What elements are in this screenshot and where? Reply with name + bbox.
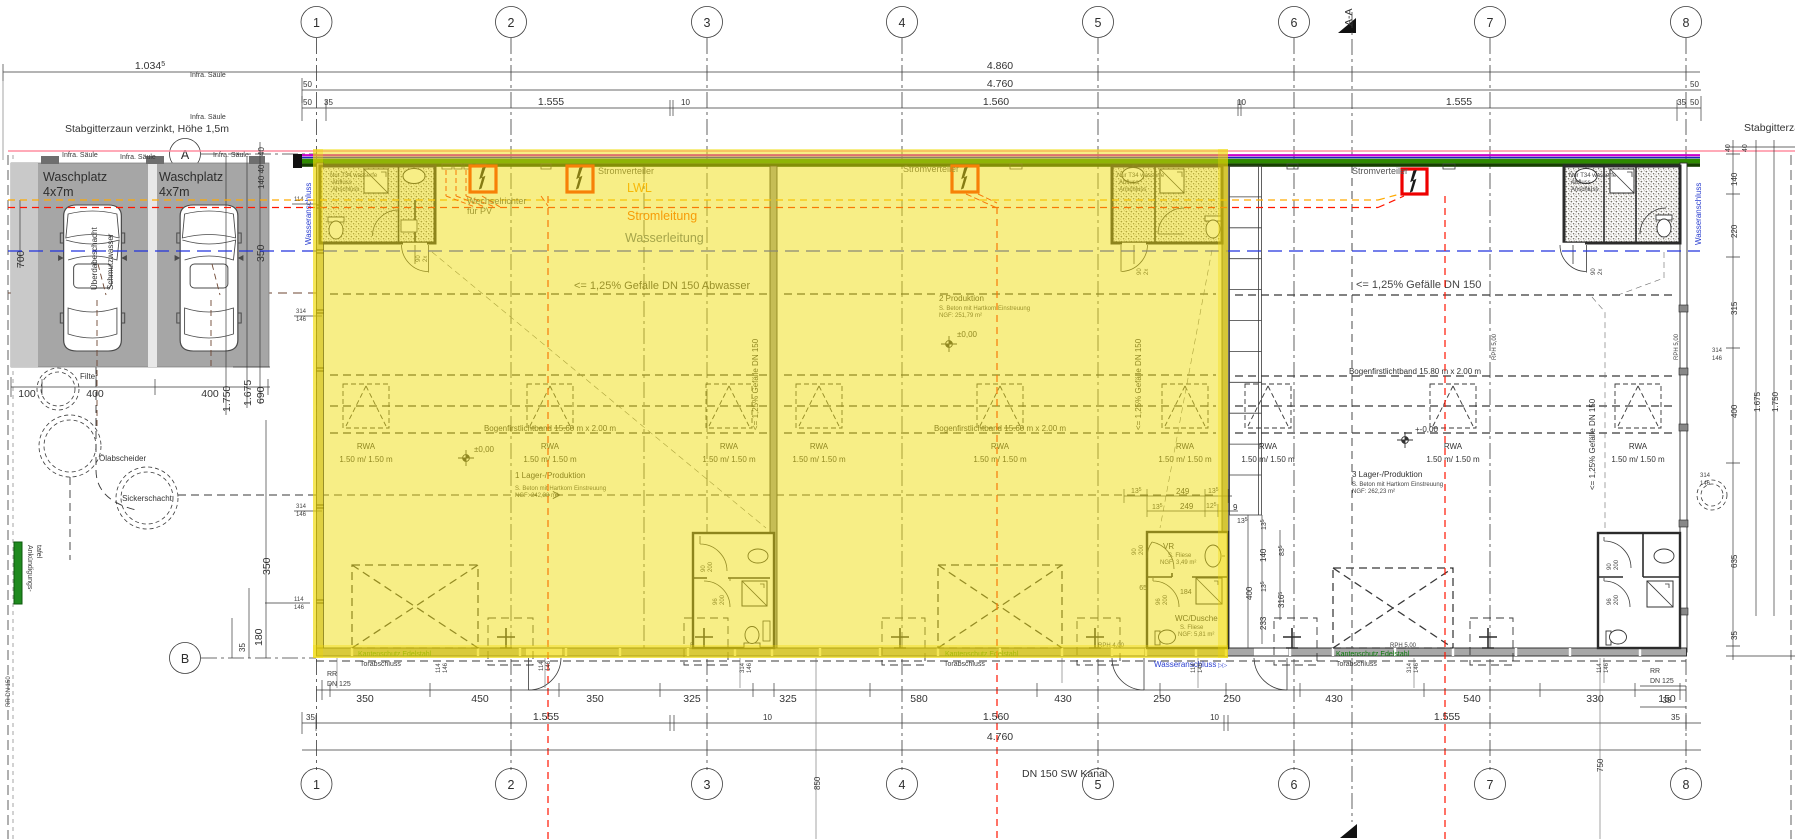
svg-text:RPH 5,00: RPH 5,00 (1674, 333, 1680, 360)
svg-text:146: 146 (546, 660, 552, 671)
svg-text:4: 4 (899, 16, 906, 30)
svg-text:7: 7 (1487, 778, 1494, 792)
svg-text:350: 350 (586, 693, 604, 705)
svg-text:114: 114 (539, 661, 545, 671)
svg-text:1.750: 1.750 (221, 386, 233, 412)
svg-text:96: 96 (1607, 598, 1613, 605)
svg-text:35: 35 (1730, 631, 1739, 640)
svg-text:Anschluss: Anschluss (1571, 187, 1598, 193)
svg-text:Infra. Säule: Infra. Säule (190, 72, 226, 79)
svg-text:1.675: 1.675 (1753, 391, 1762, 412)
svg-text:<= 1,25% Gefälle DN 150: <= 1,25% Gefälle DN 150 (1356, 279, 1481, 291)
svg-text:146: 146 (1198, 662, 1204, 673)
svg-text:90: 90 (1607, 563, 1613, 570)
svg-text:8: 8 (1683, 16, 1690, 30)
svg-text:4.760: 4.760 (987, 731, 1013, 743)
svg-text:10: 10 (681, 98, 690, 107)
svg-text:▷▷: ▷▷ (1218, 663, 1228, 669)
svg-text:Sickerschacht: Sickerschacht (122, 494, 173, 503)
svg-text:Wasseranschluss: Wasseranschluss (1694, 183, 1703, 245)
svg-text:35: 35 (1663, 696, 1672, 705)
svg-text:Wasseranschluss: Wasseranschluss (1154, 660, 1216, 669)
svg-text:140: 140 (1730, 172, 1739, 186)
svg-text:Nur T34 wasserfe: Nur T34 wasserfe (1569, 173, 1617, 179)
svg-text:1.0345: 1.0345 (135, 60, 165, 72)
svg-text:40: 40 (257, 147, 266, 156)
svg-text:314: 314 (740, 662, 746, 673)
svg-text:114: 114 (294, 597, 304, 603)
svg-text:Infra. Säule: Infra. Säule (213, 152, 249, 159)
svg-text:400: 400 (201, 388, 219, 400)
svg-text:4x7m: 4x7m (43, 185, 74, 199)
svg-text:180: 180 (253, 628, 265, 646)
svg-text:314: 314 (1700, 473, 1711, 479)
svg-text:114: 114 (1597, 663, 1603, 673)
svg-text:B: B (181, 652, 189, 666)
svg-text:Torabschluss: Torabschluss (360, 661, 401, 668)
svg-text:140 40: 140 40 (257, 164, 266, 189)
svg-text:580: 580 (910, 693, 928, 705)
svg-text:315: 315 (1730, 301, 1739, 315)
svg-text:1.50 m/ 1.50 m: 1.50 m/ 1.50 m (1426, 455, 1480, 464)
svg-text:40: 40 (1725, 144, 1732, 152)
svg-text:3: 3 (704, 16, 711, 30)
svg-text:1.555: 1.555 (1434, 711, 1460, 723)
svg-text:NGF: 262,23 m²: NGF: 262,23 m² (1352, 489, 1395, 495)
svg-text:450: 450 (471, 693, 489, 705)
svg-text:146: 146 (1700, 481, 1711, 487)
svg-text:850: 850 (813, 776, 822, 790)
svg-text:3 Lager-/Produktion: 3 Lager-/Produktion (1352, 470, 1422, 479)
svg-text:4.760: 4.760 (987, 78, 1013, 90)
svg-text:1.555: 1.555 (1446, 96, 1472, 108)
svg-text:3: 3 (704, 778, 711, 792)
svg-text:400: 400 (1245, 586, 1254, 600)
svg-text:220: 220 (1730, 224, 1739, 238)
svg-text:DN 125: DN 125 (1650, 678, 1674, 685)
svg-text:200: 200 (1614, 594, 1620, 605)
svg-text:430: 430 (1325, 693, 1343, 705)
svg-text:5: 5 (1095, 16, 1102, 30)
svg-text:DN 125: DN 125 (327, 681, 351, 688)
svg-text:Überdabeschacht: Überdabeschacht (90, 227, 99, 290)
svg-text:750: 750 (1596, 758, 1605, 772)
svg-text:RWA: RWA (1444, 442, 1463, 451)
svg-text:+-0,00: +-0,00 (1415, 425, 1438, 434)
svg-text:325: 325 (779, 693, 797, 705)
svg-text:50: 50 (303, 80, 312, 89)
svg-text:400: 400 (86, 388, 104, 400)
svg-text:146: 146 (296, 512, 307, 518)
svg-text:Torabschluss: Torabschluss (1336, 661, 1377, 668)
svg-text:146: 146 (1604, 662, 1610, 673)
svg-text:DN 150 SW Kanal: DN 150 SW Kanal (1022, 768, 1107, 780)
svg-text:2: 2 (508, 16, 515, 30)
svg-text:Ölabscheider: Ölabscheider (99, 454, 146, 463)
svg-text:50: 50 (1690, 98, 1699, 107)
svg-text:8: 8 (1683, 778, 1690, 792)
svg-text:635: 635 (1730, 554, 1739, 568)
svg-text:35: 35 (1677, 98, 1686, 107)
svg-text:A: A (181, 148, 190, 162)
svg-text:540: 540 (1463, 693, 1481, 705)
svg-text:Waschplatz: Waschplatz (159, 170, 223, 184)
svg-text:114: 114 (436, 663, 442, 673)
svg-text:250: 250 (1223, 693, 1241, 705)
svg-text:1.675: 1.675 (242, 380, 254, 406)
svg-text:<= 1,25% Gefälle DN 150: <= 1,25% Gefälle DN 150 (1588, 398, 1597, 490)
svg-text:10: 10 (1237, 98, 1246, 107)
svg-text:1: 1 (313, 16, 320, 30)
svg-text:314: 314 (296, 504, 307, 510)
svg-text:RPH 5,00: RPH 5,00 (1492, 333, 1498, 360)
svg-text:Torabschluss: Torabschluss (944, 661, 985, 668)
svg-text:1.560: 1.560 (983, 711, 1009, 723)
svg-text:146: 146 (294, 605, 305, 611)
svg-text:1: 1 (313, 778, 320, 792)
svg-text:1.555: 1.555 (538, 96, 564, 108)
svg-text:Wasseranschluss: Wasseranschluss (304, 183, 313, 245)
svg-text:Schmutzwasser: Schmutzwasser (106, 233, 115, 290)
svg-text:314: 314 (296, 309, 307, 315)
svg-text:RR: RR (327, 671, 337, 678)
svg-text:50: 50 (303, 98, 312, 107)
svg-text:350: 350 (255, 244, 267, 262)
svg-text:Stabgitterzaun verzinkt, Höhe: Stabgitterzaun verzinkt, Höhe 1,5m (65, 123, 229, 135)
svg-text:RR: RR (1650, 668, 1660, 675)
svg-text:9: 9 (1233, 503, 1238, 512)
svg-text:314: 314 (1407, 662, 1413, 673)
svg-text:S. Beton mit Hartkorn Einstreu: S. Beton mit Hartkorn Einstreuung (1352, 482, 1443, 488)
svg-text:1.555: 1.555 (533, 711, 559, 723)
svg-text:100: 100 (18, 388, 36, 400)
svg-text:1.750: 1.750 (1771, 391, 1780, 412)
svg-text:RR DN 150: RR DN 150 (6, 676, 12, 707)
svg-text:1.50 m/ 1.50 m: 1.50 m/ 1.50 m (1241, 455, 1295, 464)
svg-text:5: 5 (1095, 778, 1102, 792)
svg-text:330: 330 (1586, 693, 1604, 705)
svg-text:314: 314 (1712, 348, 1723, 354)
svg-text:140: 140 (1259, 548, 1268, 562)
svg-text:146: 146 (443, 662, 449, 673)
svg-text:tafel: tafel (35, 545, 42, 559)
svg-text:Bogenfirstlichtband 15.80 m x: Bogenfirstlichtband 15.80 m x 2.00 m (1349, 367, 1481, 376)
svg-text:4x7m: 4x7m (159, 185, 190, 199)
svg-text:250: 250 (1153, 693, 1171, 705)
svg-text:2: 2 (508, 778, 515, 792)
svg-text:146: 146 (747, 662, 753, 673)
svg-text:A-A: A-A (1343, 8, 1355, 26)
svg-text:325: 325 (683, 693, 701, 705)
svg-text:350: 350 (356, 693, 374, 705)
svg-text:10: 10 (1210, 713, 1219, 722)
svg-text:6: 6 (1291, 16, 1298, 30)
svg-text:430: 430 (1054, 693, 1072, 705)
svg-text:146: 146 (296, 317, 307, 323)
svg-text:50: 50 (1690, 80, 1699, 89)
svg-text:Waschplatz: Waschplatz (43, 170, 107, 184)
svg-text:Kantenschutz Edelstahl: Kantenschutz Edelstahl (1336, 651, 1410, 658)
svg-text:700: 700 (15, 250, 27, 268)
svg-text:1.560: 1.560 (983, 96, 1009, 108)
svg-text:RWA: RWA (1259, 442, 1278, 451)
svg-text:Ankündigungs-: Ankündigungs- (26, 545, 33, 592)
svg-text:35: 35 (1671, 713, 1680, 722)
svg-text:146: 146 (1414, 662, 1420, 673)
svg-text:Filter: Filter (80, 372, 98, 381)
svg-text:146: 146 (1712, 356, 1723, 362)
svg-text:35: 35 (238, 643, 247, 652)
svg-text:Stabgitterza: Stabgitterza (1744, 122, 1795, 134)
svg-text:Infra. Säule: Infra. Säule (120, 154, 156, 161)
svg-text:4.860: 4.860 (987, 60, 1013, 72)
svg-text:Abfluss: Abfluss (1571, 180, 1591, 186)
svg-text:350: 350 (261, 557, 273, 575)
svg-text:40: 40 (1742, 144, 1749, 152)
svg-text:2x: 2x (1598, 269, 1604, 275)
svg-text:200: 200 (1614, 559, 1620, 570)
svg-text:35: 35 (324, 98, 333, 107)
svg-text:690: 690 (255, 386, 267, 404)
svg-text:7: 7 (1487, 16, 1494, 30)
svg-text:233: 233 (1259, 616, 1268, 630)
svg-text:90: 90 (1591, 268, 1597, 275)
svg-text:4: 4 (899, 778, 906, 792)
svg-text:10: 10 (763, 713, 772, 722)
svg-text:400: 400 (1730, 404, 1739, 418)
svg-text:Infra. Säule: Infra. Säule (62, 152, 98, 159)
svg-text:35: 35 (306, 713, 315, 722)
svg-text:1.50 m/ 1.50 m: 1.50 m/ 1.50 m (1611, 455, 1665, 464)
svg-text:114: 114 (1191, 663, 1197, 673)
svg-text:RWA: RWA (1629, 442, 1648, 451)
svg-text:6: 6 (1291, 778, 1298, 792)
svg-text:Stromverteiler: Stromverteiler (1352, 166, 1408, 176)
svg-text:Infra. Säule: Infra. Säule (190, 114, 226, 121)
